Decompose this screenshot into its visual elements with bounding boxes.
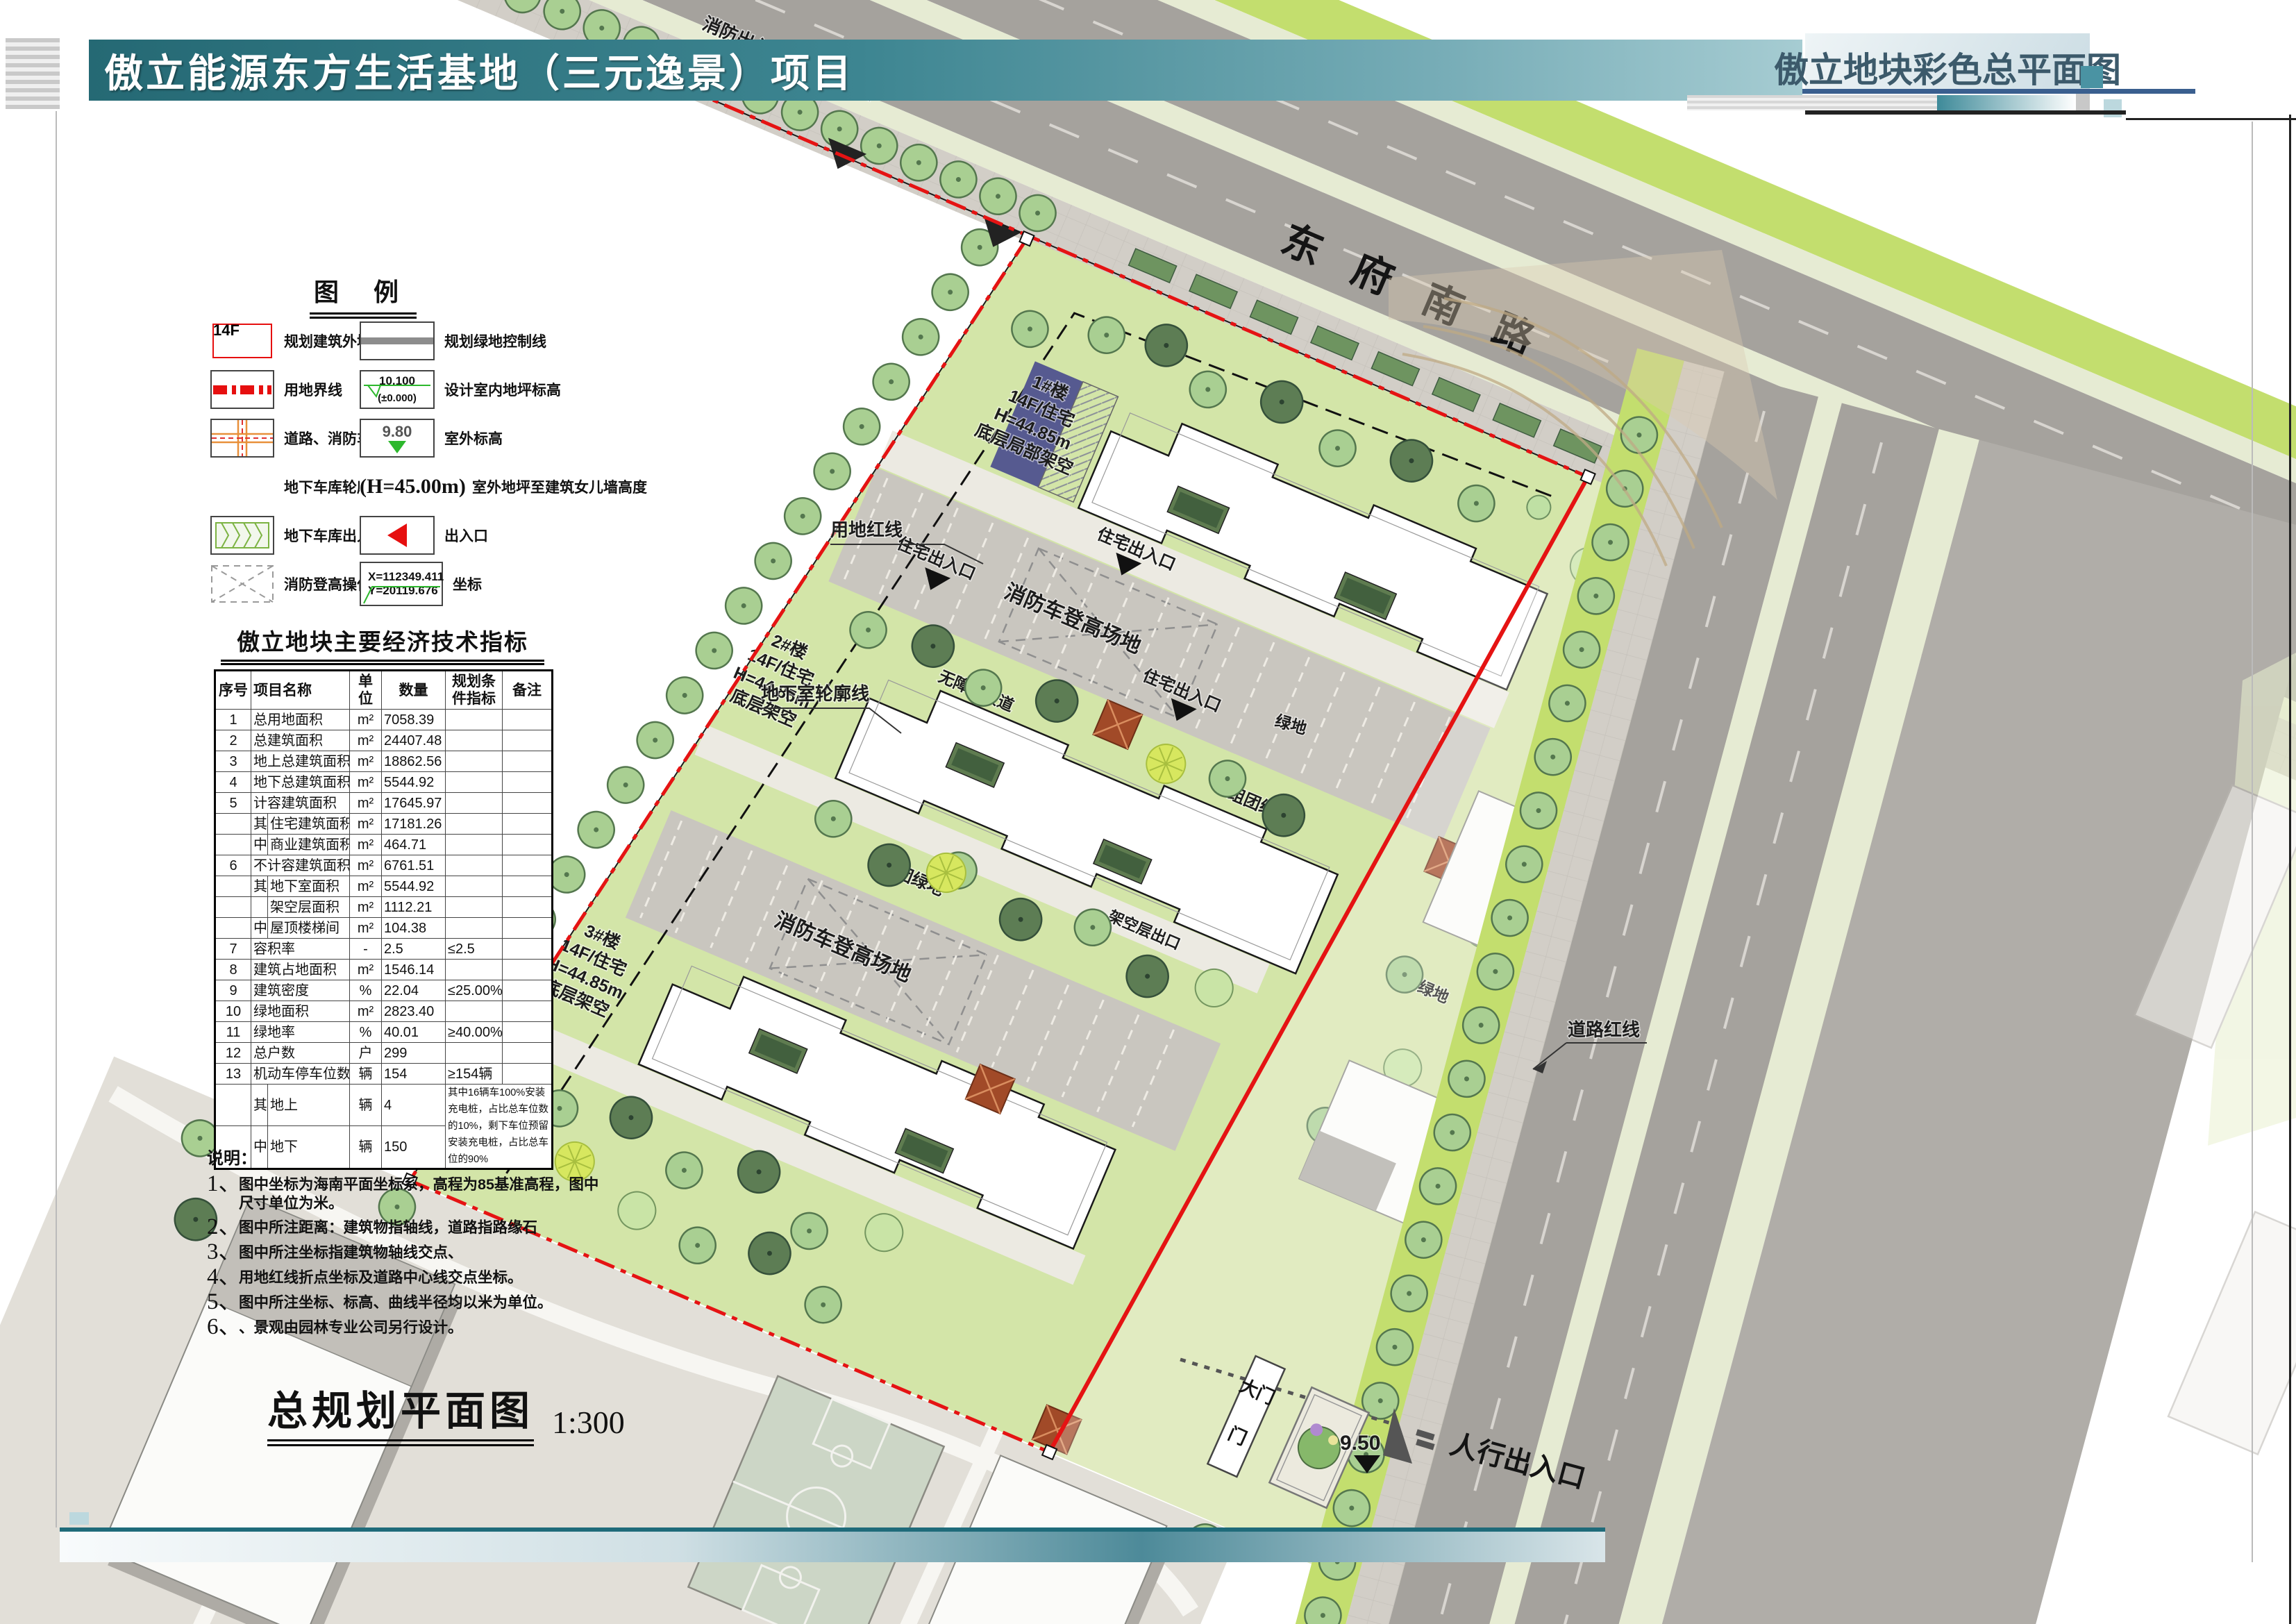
table-cell-name: 总户数	[251, 1043, 350, 1064]
legend-item-label: 用地界线	[284, 379, 342, 400]
table-cell-remark	[503, 835, 553, 855]
bottom-bar	[60, 1527, 1605, 1562]
table-cell-name: 建筑密度	[251, 980, 350, 1001]
table-cell-seq: 3	[215, 751, 251, 772]
tree-icon	[750, 537, 797, 585]
corner-decoration	[6, 38, 60, 109]
note-item: 5、图中所注坐标、标高、曲线半径均以米为单位。	[207, 1291, 612, 1313]
note-item: 6、、景观由园林专业公司另行设计。	[207, 1316, 612, 1338]
subtitle-panel: 傲立地块彩色总平面图	[1805, 33, 2090, 90]
table-cell-unit: m²	[350, 918, 382, 939]
table-cell-qty: 7058.39	[382, 710, 446, 730]
table-cell-seq: 1	[215, 710, 251, 730]
tree-icon	[720, 582, 767, 629]
table-cell-unit: m²	[350, 793, 382, 814]
frame-line-right	[2289, 115, 2291, 1624]
col-header: 单位	[350, 671, 382, 710]
table-cell-cond	[446, 1001, 503, 1022]
table-cell-unit: m²	[350, 1001, 382, 1022]
table-cell-name: 地上总建筑面积	[251, 751, 350, 772]
note-number: 4、	[207, 1266, 239, 1288]
scale-title-block: 总规划平面图 1:300	[267, 1378, 625, 1446]
table-cell-cond	[446, 855, 503, 876]
col-header: 序号	[215, 671, 251, 710]
table-cell-unit: %	[350, 1022, 382, 1043]
tree-icon	[632, 717, 679, 764]
table-cell-seq: 4	[215, 772, 251, 793]
garage-outline-swatch-icon	[210, 467, 274, 506]
note-number: 1、	[207, 1173, 239, 1213]
table-cell-qty: 40.01	[382, 1022, 446, 1043]
table-cell-unit: 辆	[350, 1064, 382, 1085]
table-cell-remark	[503, 1022, 553, 1043]
note-text: 图中所注坐标指建筑物轴线交点、	[239, 1241, 463, 1263]
tree-icon	[661, 671, 708, 719]
decor-square-pale	[2104, 99, 2122, 117]
table-row: 7容积率-2.5≤2.5	[215, 939, 553, 960]
legend-item: 10.100 (±0.000) 设计室内地坪标高	[360, 369, 647, 410]
table-cell-name: 总建筑面积	[251, 730, 350, 751]
table-cell-remark	[503, 793, 553, 814]
entrance-swatch-icon	[360, 516, 435, 555]
table-cell-prefix: 其	[251, 876, 268, 897]
table-row: 11绿地率%40.01≥40.00%	[215, 1022, 553, 1043]
green-control-swatch-icon	[360, 321, 435, 360]
table-cell-remark	[503, 918, 553, 939]
height-swatch: (H=45.00m)	[360, 467, 471, 506]
table-cell-cond: ≥154辆	[446, 1064, 503, 1085]
tree-icon	[779, 492, 826, 539]
table-cell-seq: 8	[215, 960, 251, 980]
table-row: 其地下室面积m²5544.92	[215, 876, 553, 897]
table-cell-qty: 18862.56	[382, 751, 446, 772]
tree-icon	[691, 627, 738, 674]
table-cell-name: 计容建筑面积	[251, 793, 350, 814]
table-cell-qty: 5544.92	[382, 876, 446, 897]
table-cell-qty: 154	[382, 1064, 446, 1085]
legend-item: (H=45.00m) 室外地坪至建筑女儿墙高度	[360, 467, 647, 507]
frame-line-top-right	[1805, 110, 2126, 115]
table-row: 3地上总建筑面积m²18862.56	[215, 751, 553, 772]
table-cell-name: 机动车停车位数	[251, 1064, 350, 1085]
table-cell-unit: m²	[350, 960, 382, 980]
page-title: 傲立能源东方生活基地（三元逸景）项目	[89, 42, 854, 99]
table-cell-unit: m²	[350, 772, 382, 793]
table-cell-prefix: 其	[251, 814, 268, 835]
table-row: 12总户数户299	[215, 1043, 553, 1064]
table-row: 其地上辆4其中16辆车100%安装充电桩，占比总车位数的10%，剩下车位预留安装…	[215, 1085, 553, 1126]
table-cell-name: 建筑占地面积	[251, 960, 350, 980]
table-cell-remark	[503, 710, 553, 730]
fire-operation-swatch-icon	[210, 564, 274, 603]
table-cell-name: 地下室面积	[268, 876, 350, 897]
site-boundary-swatch-icon	[210, 370, 274, 409]
basement-outline-label: 地下室轮廓线	[761, 683, 869, 704]
table-cell-qty: 17645.97	[382, 793, 446, 814]
indicator-table-title: 傲立地块主要经济技术指标	[221, 623, 544, 665]
plan-scale-title: 总规划平面图	[267, 1378, 534, 1446]
table-cell-seq	[215, 918, 251, 939]
table-cell-qty: 17181.26	[382, 814, 446, 835]
road-red-line-label: 道路红线	[1568, 1019, 1640, 1040]
note-text: 图中所注坐标、标高、曲线半径均以米为单位。	[239, 1291, 553, 1313]
table-cell-qty: 6761.51	[382, 855, 446, 876]
subtitle-underline	[1802, 89, 2195, 94]
page-subtitle: 傲立地块彩色总平面图	[1774, 53, 2121, 90]
table-cell-remark	[503, 897, 553, 918]
elevation-950-label: 9.50	[1340, 1432, 1380, 1455]
table-cell-seq	[215, 876, 251, 897]
indoor-elevation-swatch-icon: 10.100 (±0.000)	[360, 370, 435, 409]
frame-line-left	[56, 111, 57, 1527]
table-row: 中商业建筑面积m²464.71	[215, 835, 553, 855]
indicator-table-body: 1总用地面积m²7058.392总建筑面积m²24407.483地上总建筑面积m…	[215, 710, 553, 1169]
col-header: 规划条件指标	[446, 671, 503, 710]
table-cell-prefix: 中	[251, 918, 268, 939]
note-item: 4、用地红线折点坐标及道路中心线交点坐标。	[207, 1266, 612, 1288]
indicator-table: 序号 项目名称 单位 数量 规划条件指标 备注 1总用地面积m²7058.392…	[214, 669, 553, 1170]
table-cell-remark	[503, 730, 553, 751]
table-cell-name: 架空层面积	[268, 897, 350, 918]
table-cell-remark	[503, 814, 553, 835]
table-cell-remark	[503, 960, 553, 980]
table-cell-cond	[446, 793, 503, 814]
table-cell-seq	[215, 1085, 251, 1126]
table-cell-name: 住宅建筑面积	[268, 814, 350, 835]
table-cell-remark	[503, 1001, 553, 1022]
table-cell-qty: 24407.48	[382, 730, 446, 751]
tree-icon	[897, 313, 944, 360]
table-cell-remark	[503, 751, 553, 772]
table-cell-seq: 6	[215, 855, 251, 876]
table-cell-unit: m²	[350, 835, 382, 855]
note-item: 3、图中所注坐标指建筑物轴线交点、	[207, 1241, 612, 1263]
table-cell-name: 绿地面积	[251, 1001, 350, 1022]
tree-icon	[602, 761, 649, 808]
table-cell-name: 不计容建筑面积	[251, 855, 350, 876]
outdoor-elevation-swatch-icon: 9.80	[360, 419, 435, 458]
notes-list: 1、图中坐标为海南平面坐标系，高程为85基准高程，图中尺寸单位为米。2、图中所注…	[207, 1173, 612, 1338]
table-cell-cond: ≤25.00%	[446, 980, 503, 1001]
road-swatch-icon	[210, 419, 274, 458]
building-outline-swatch-icon: 14F	[210, 321, 274, 360]
tree-icon	[868, 358, 915, 405]
table-row: 6不计容建筑面积m²6761.51	[215, 855, 553, 876]
table-cell-remark	[503, 855, 553, 876]
legend-right-column: 规划绿地控制线 10.100 (±0.000) 设计室内地坪标高 9.80 室外…	[360, 321, 647, 612]
table-cell-seq	[215, 835, 251, 855]
decor-square-gray	[2076, 94, 2090, 110]
table-row: 4地下总建筑面积m²5544.92	[215, 772, 553, 793]
legend-item-label: 出入口	[444, 525, 488, 546]
table-cell-seq	[215, 897, 251, 918]
legend-item: 9.80 室外标高	[360, 418, 647, 458]
col-header: 项目名称	[251, 671, 350, 710]
table-cell-seq: 10	[215, 1001, 251, 1022]
table-cell-qty: 22.04	[382, 980, 446, 1001]
table-cell-name: 商业建筑面积	[268, 835, 350, 855]
table-cell-cond	[446, 918, 503, 939]
table-cell-qty: 2.5	[382, 939, 446, 960]
decor-square-pale	[69, 1512, 89, 1525]
col-header: 数量	[382, 671, 446, 710]
table-cell-name: 地上	[268, 1085, 350, 1126]
frame-line-top-right-2	[2126, 118, 2296, 120]
table-cell-remark	[503, 1043, 553, 1064]
table-cell-remark	[503, 939, 553, 960]
table-cell-qty: 4	[382, 1085, 446, 1126]
legend-item-label: 室外地坪至建筑女儿墙高度	[472, 476, 647, 497]
notes-section: 说明： 1、图中坐标为海南平面坐标系，高程为85基准高程，图中尺寸单位为米。2、…	[207, 1144, 612, 1341]
table-row: 10绿地面积m²2823.40	[215, 1001, 553, 1022]
title-bar: 傲立能源东方生活基地（三元逸景）项目	[89, 40, 1802, 101]
garage-entrance-swatch-icon	[210, 516, 274, 555]
table-cell-name: 总用地面积	[251, 710, 350, 730]
table-cell-unit: 户	[350, 1043, 382, 1064]
table-cell-name: 地下总建筑面积	[251, 772, 350, 793]
table-cell-name: 屋顶楼梯间	[268, 918, 350, 939]
table-cell-seq: 12	[215, 1043, 251, 1064]
table-cell-unit: m²	[350, 710, 382, 730]
table-cell-seq	[215, 814, 251, 835]
table-cell-cond	[446, 835, 503, 855]
note-item: 2、图中所注距离：建筑物指轴线，道路指路缘石	[207, 1216, 612, 1238]
table-cell-qty: 5544.92	[382, 772, 446, 793]
table-cell-name: 绿地率	[251, 1022, 350, 1043]
table-cell-cond	[446, 751, 503, 772]
note-text: 图中坐标为海南平面坐标系，高程为85基准高程，图中尺寸单位为米。	[239, 1173, 612, 1213]
table-cell-qty: 2823.40	[382, 1001, 446, 1022]
tree-icon	[809, 448, 856, 495]
note-text: 、景观由园林专业公司另行设计。	[239, 1316, 463, 1338]
legend-item-label: 设计室内地坪标高	[444, 379, 561, 400]
table-cell-qty: 299	[382, 1043, 446, 1064]
table-row: 2总建筑面积m²24407.48	[215, 730, 553, 751]
table-cell-unit: m²	[350, 897, 382, 918]
tree-icon	[838, 403, 885, 450]
tree-icon	[927, 269, 974, 316]
note-item: 1、图中坐标为海南平面坐标系，高程为85基准高程，图中尺寸单位为米。	[207, 1173, 612, 1213]
table-cell-unit: %	[350, 980, 382, 1001]
table-cell-unit: m²	[350, 876, 382, 897]
plan-scale-value: 1:300	[552, 1404, 625, 1446]
table-row: 架空层面积m²1112.21	[215, 897, 553, 918]
land-red-line-label: 用地红线	[830, 519, 903, 540]
drawing-sheet: 东府南路 消防出入口 车行出入口	[0, 0, 2296, 1624]
note-number: 6、	[207, 1316, 239, 1338]
note-number: 3、	[207, 1241, 239, 1263]
table-cell-unit: m²	[350, 751, 382, 772]
table-cell-seq: 7	[215, 939, 251, 960]
table-row: 1总用地面积m²7058.39	[215, 710, 553, 730]
note-number: 2、	[207, 1216, 239, 1238]
table-row: 9建筑密度%22.04≤25.00%	[215, 980, 553, 1001]
col-header: 备注	[503, 671, 553, 710]
table-cell-qty: 1112.21	[382, 897, 446, 918]
table-cell-cond	[446, 730, 503, 751]
table-cell-seq: 13	[215, 1064, 251, 1085]
coordinate-swatch-icon: X=112349.411 Y=20119.676	[360, 562, 443, 606]
table-cell-name: 容积率	[251, 939, 350, 960]
table-row: 5计容建筑面积m²17645.97	[215, 793, 553, 814]
table-row: 其住宅建筑面积m²17181.26	[215, 814, 553, 835]
table-cell-cond: ≤2.5	[446, 939, 503, 960]
decor-square-teal	[2081, 66, 2103, 88]
table-cell-cond	[446, 814, 503, 835]
subtitle-teal-band	[1937, 95, 2076, 110]
table-cell-unit: m²	[350, 855, 382, 876]
frame-line-right-inner	[2252, 122, 2253, 1562]
legend-item: 出入口	[360, 515, 647, 555]
table-cell-cond	[446, 772, 503, 793]
legend-item-label: 坐标	[453, 574, 482, 594]
table-cell-unit: 辆	[350, 1085, 382, 1126]
table-cell-prefix: 其	[251, 1085, 268, 1126]
table-cell-cond	[446, 876, 503, 897]
notes-title: 说明：	[207, 1144, 612, 1169]
table-row: 13机动车停车位数辆154≥154辆	[215, 1064, 553, 1085]
table-cell-remark	[503, 876, 553, 897]
table-cell-cond	[446, 1043, 503, 1064]
note-text: 图中所注距离：建筑物指轴线，道路指路缘石	[239, 1216, 537, 1238]
indicator-table-section: 傲立地块主要经济技术指标 序号 项目名称 单位 数量 规划条件指标 备注 1总用…	[214, 623, 551, 1170]
table-cell-unit: m²	[350, 814, 382, 835]
table-cell-prefix	[251, 897, 268, 918]
table-cell-seq: 2	[215, 730, 251, 751]
table-cell-qty: 104.38	[382, 918, 446, 939]
table-cell-remark	[503, 980, 553, 1001]
table-header-row: 序号 项目名称 单位 数量 规划条件指标 备注	[215, 671, 553, 710]
legend-item-label: 规划绿地控制线	[444, 330, 546, 351]
legend-title: 图 例	[310, 272, 417, 319]
legend-item-label: 室外标高	[444, 428, 503, 449]
table-cell-cond	[446, 710, 503, 730]
table-row: 8建筑占地面积m²1546.14	[215, 960, 553, 980]
table-cell-remark	[503, 772, 553, 793]
table-cell-seq: 11	[215, 1022, 251, 1043]
table-cell-cond	[446, 897, 503, 918]
table-cell-qty: 464.71	[382, 835, 446, 855]
table-cell-remark	[503, 1064, 553, 1085]
tree-icon	[573, 806, 620, 853]
legend-item: X=112349.411 Y=20119.676 坐标	[360, 564, 647, 604]
table-cell-seq: 9	[215, 980, 251, 1001]
table-cell-unit: -	[350, 939, 382, 960]
table-cell-prefix: 中	[251, 835, 268, 855]
table-cell-qty: 1546.14	[382, 960, 446, 980]
table-cell-cond	[446, 960, 503, 980]
legend-item: 规划绿地控制线	[360, 321, 647, 361]
table-row: 中屋顶楼梯间m²104.38	[215, 918, 553, 939]
table-cell-seq: 5	[215, 793, 251, 814]
table-cell-cond: ≥40.00%	[446, 1022, 503, 1043]
note-text: 用地红线折点坐标及道路中心线交点坐标。	[239, 1266, 523, 1288]
table-cell-unit: m²	[350, 730, 382, 751]
note-number: 5、	[207, 1291, 239, 1313]
